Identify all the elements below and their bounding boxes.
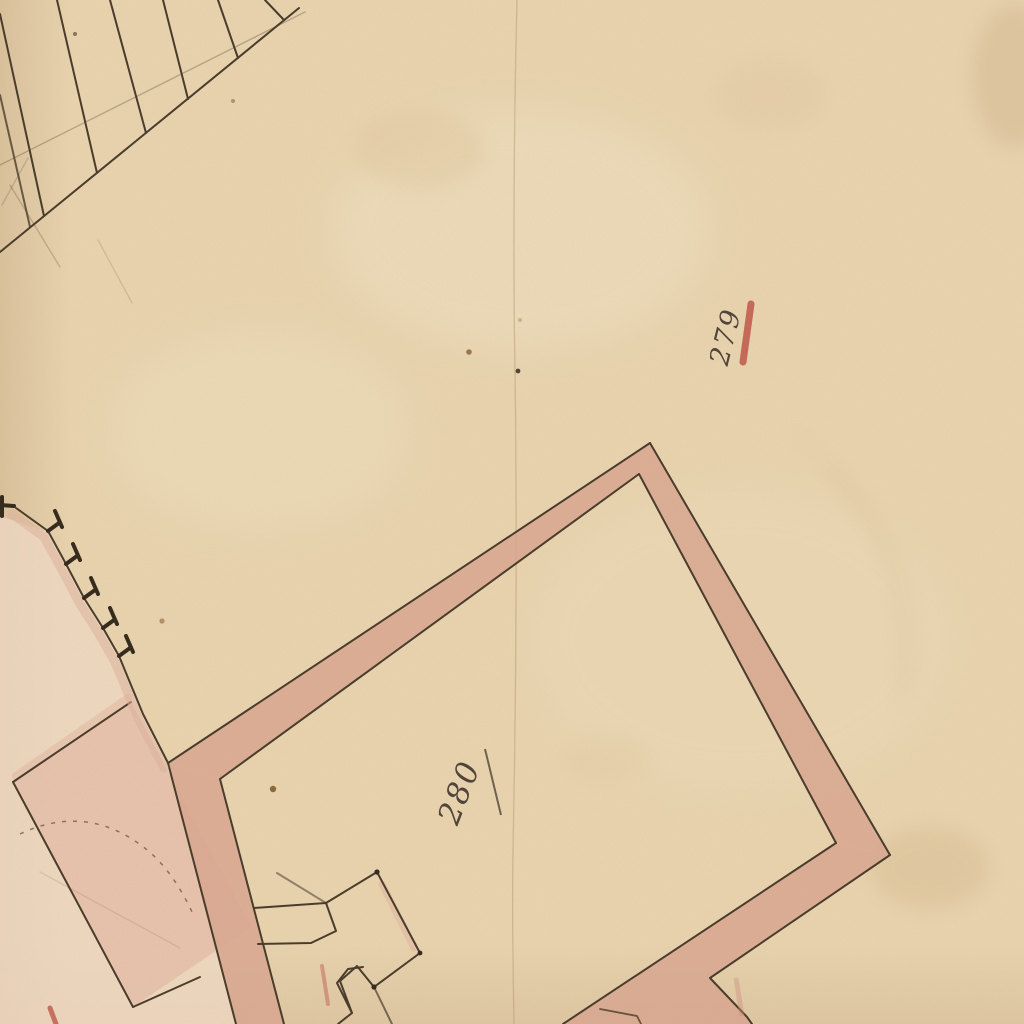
- paper-grain: [0, 0, 1024, 1024]
- plan-sheet: 279 280: [0, 0, 1024, 1024]
- map-canvas: 279 280: [0, 0, 1024, 1024]
